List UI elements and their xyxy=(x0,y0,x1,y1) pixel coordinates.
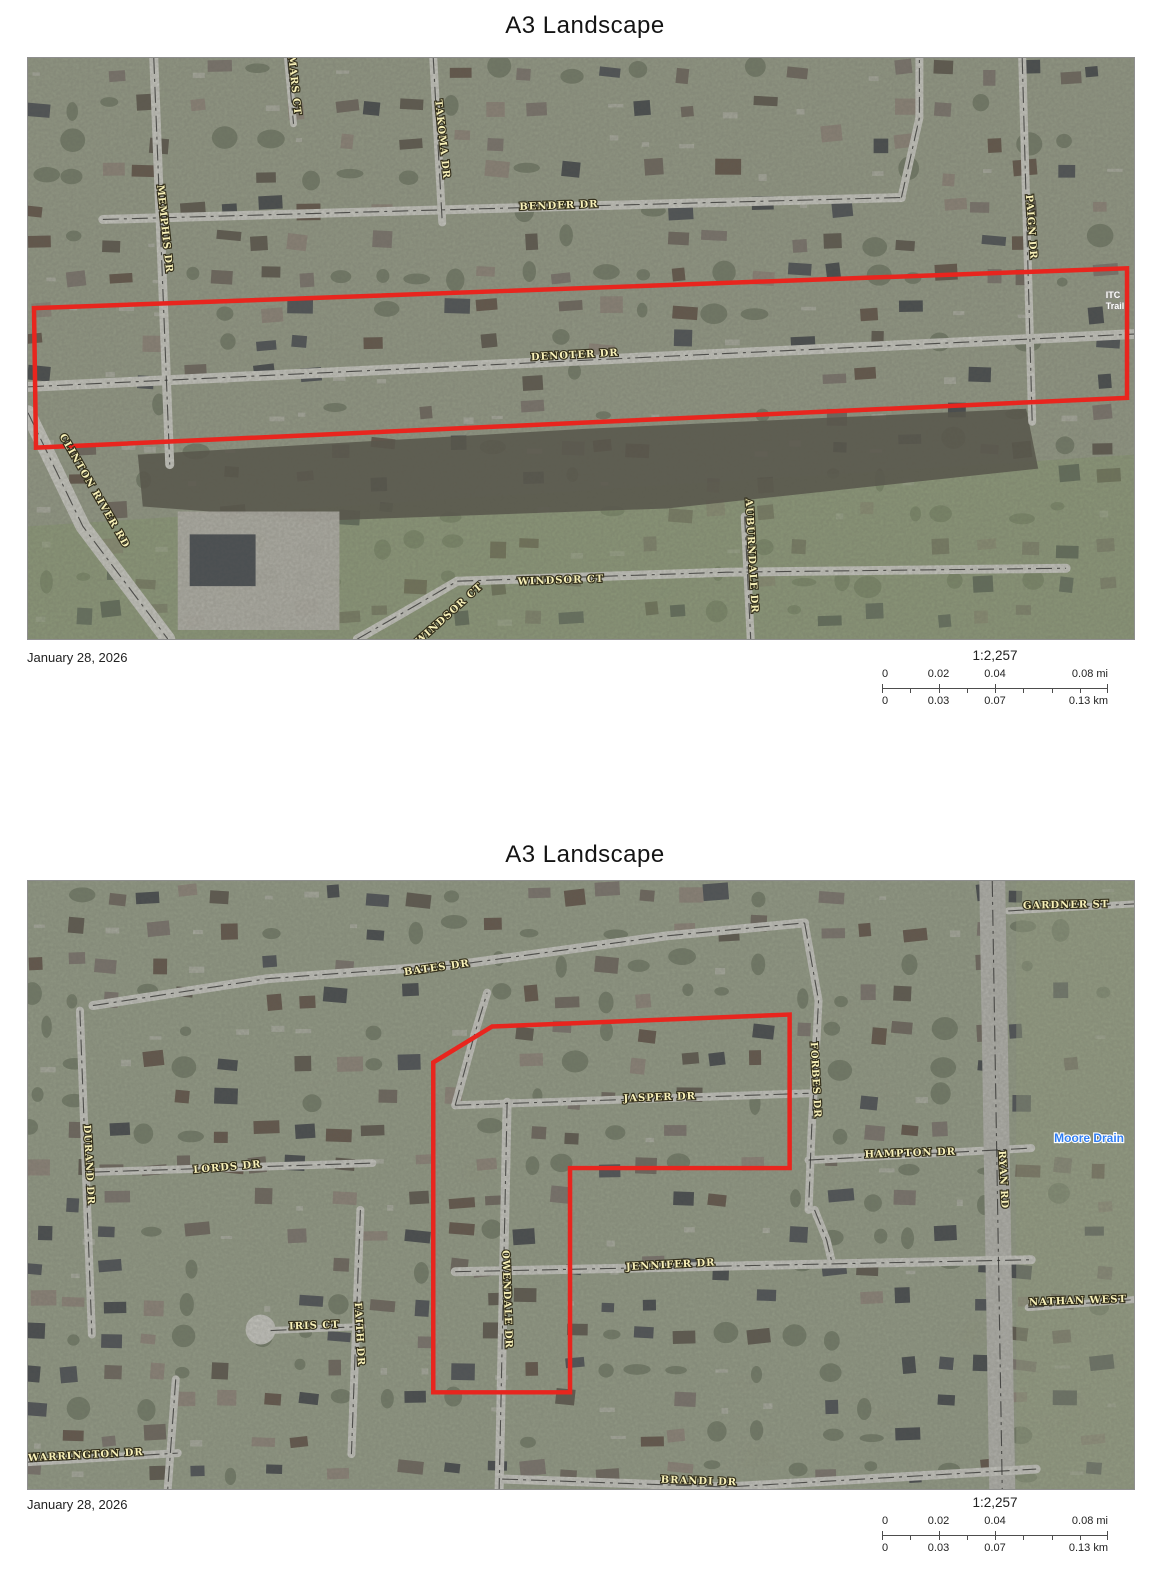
aerial-map-image: MARS CTTAKOMA DRMEMPHIS DRBENDER DRPAIGN… xyxy=(28,58,1134,639)
scale-mi-3: 0.08 mi xyxy=(1072,1515,1108,1527)
scale-bar: 0 0.02 0.04 0.08 mi 0 0.03 0.07 0.13 km xyxy=(882,668,1108,709)
street-label: IRIS CT xyxy=(289,1320,340,1333)
scale-km-3: 0.13 km xyxy=(1069,695,1108,707)
scale-km-2: 0.07 xyxy=(984,695,1005,707)
map-viewport: GARDNER STBATES DRDURAND DRLORDS DRJASPE… xyxy=(27,880,1135,1490)
map-export-page-1: A3 Landscape MARS CTTAKOMA DRMEMPHIS DRB… xyxy=(0,0,1170,825)
page-title: A3 Landscape xyxy=(0,841,1170,869)
scale-bar-ruler xyxy=(882,1531,1108,1540)
map-date-label: January 28, 2026 xyxy=(27,1497,127,1512)
scale-bar-miles-labels: 0 0.02 0.04 0.08 mi xyxy=(882,1515,1108,1529)
map-viewport: MARS CTTAKOMA DRMEMPHIS DRBENDER DRPAIGN… xyxy=(27,57,1135,640)
scale-mi-1: 0.02 xyxy=(928,1515,949,1527)
map-export-page-2: A3 Landscape GARDNER STBATES DRDURAND DR… xyxy=(0,825,1170,1584)
page-title: A3 Landscape xyxy=(0,12,1170,40)
scale-mi-0: 0 xyxy=(882,1515,888,1527)
scale-mi-2: 0.04 xyxy=(984,668,1005,680)
street-label: Moore Drain xyxy=(1054,1131,1124,1145)
scale-bar-km-labels: 0 0.03 0.07 0.13 km xyxy=(882,695,1108,709)
scale-ratio-label: 1:2,257 xyxy=(882,1495,1108,1510)
map-date-label: January 28, 2026 xyxy=(27,650,127,665)
scale-bar-ruler xyxy=(882,684,1108,693)
scale-km-1: 0.03 xyxy=(928,1542,949,1554)
scale-km-1: 0.03 xyxy=(928,695,949,707)
scale-km-2: 0.07 xyxy=(984,1542,1005,1554)
scale-mi-1: 0.02 xyxy=(928,668,949,680)
scale-km-0: 0 xyxy=(882,1542,888,1554)
street-label: ITC xyxy=(1106,290,1121,300)
scale-mi-0: 0 xyxy=(882,668,888,680)
scale-bar-km-labels: 0 0.03 0.07 0.13 km xyxy=(882,1542,1108,1556)
scale-ratio-label: 1:2,257 xyxy=(882,648,1108,663)
street-label: Trail xyxy=(1106,301,1124,311)
scale-km-0: 0 xyxy=(882,695,888,707)
scale-bar: 0 0.02 0.04 0.08 mi 0 0.03 0.07 0.13 km xyxy=(882,1515,1108,1556)
aerial-map-image: GARDNER STBATES DRDURAND DRLORDS DRJASPE… xyxy=(28,881,1134,1489)
street-label: GARDNER ST xyxy=(1023,899,1109,911)
scale-km-3: 0.13 km xyxy=(1069,1542,1108,1554)
scale-bar-miles-labels: 0 0.02 0.04 0.08 mi xyxy=(882,668,1108,682)
scale-mi-2: 0.04 xyxy=(984,1515,1005,1527)
scale-mi-3: 0.08 mi xyxy=(1072,668,1108,680)
